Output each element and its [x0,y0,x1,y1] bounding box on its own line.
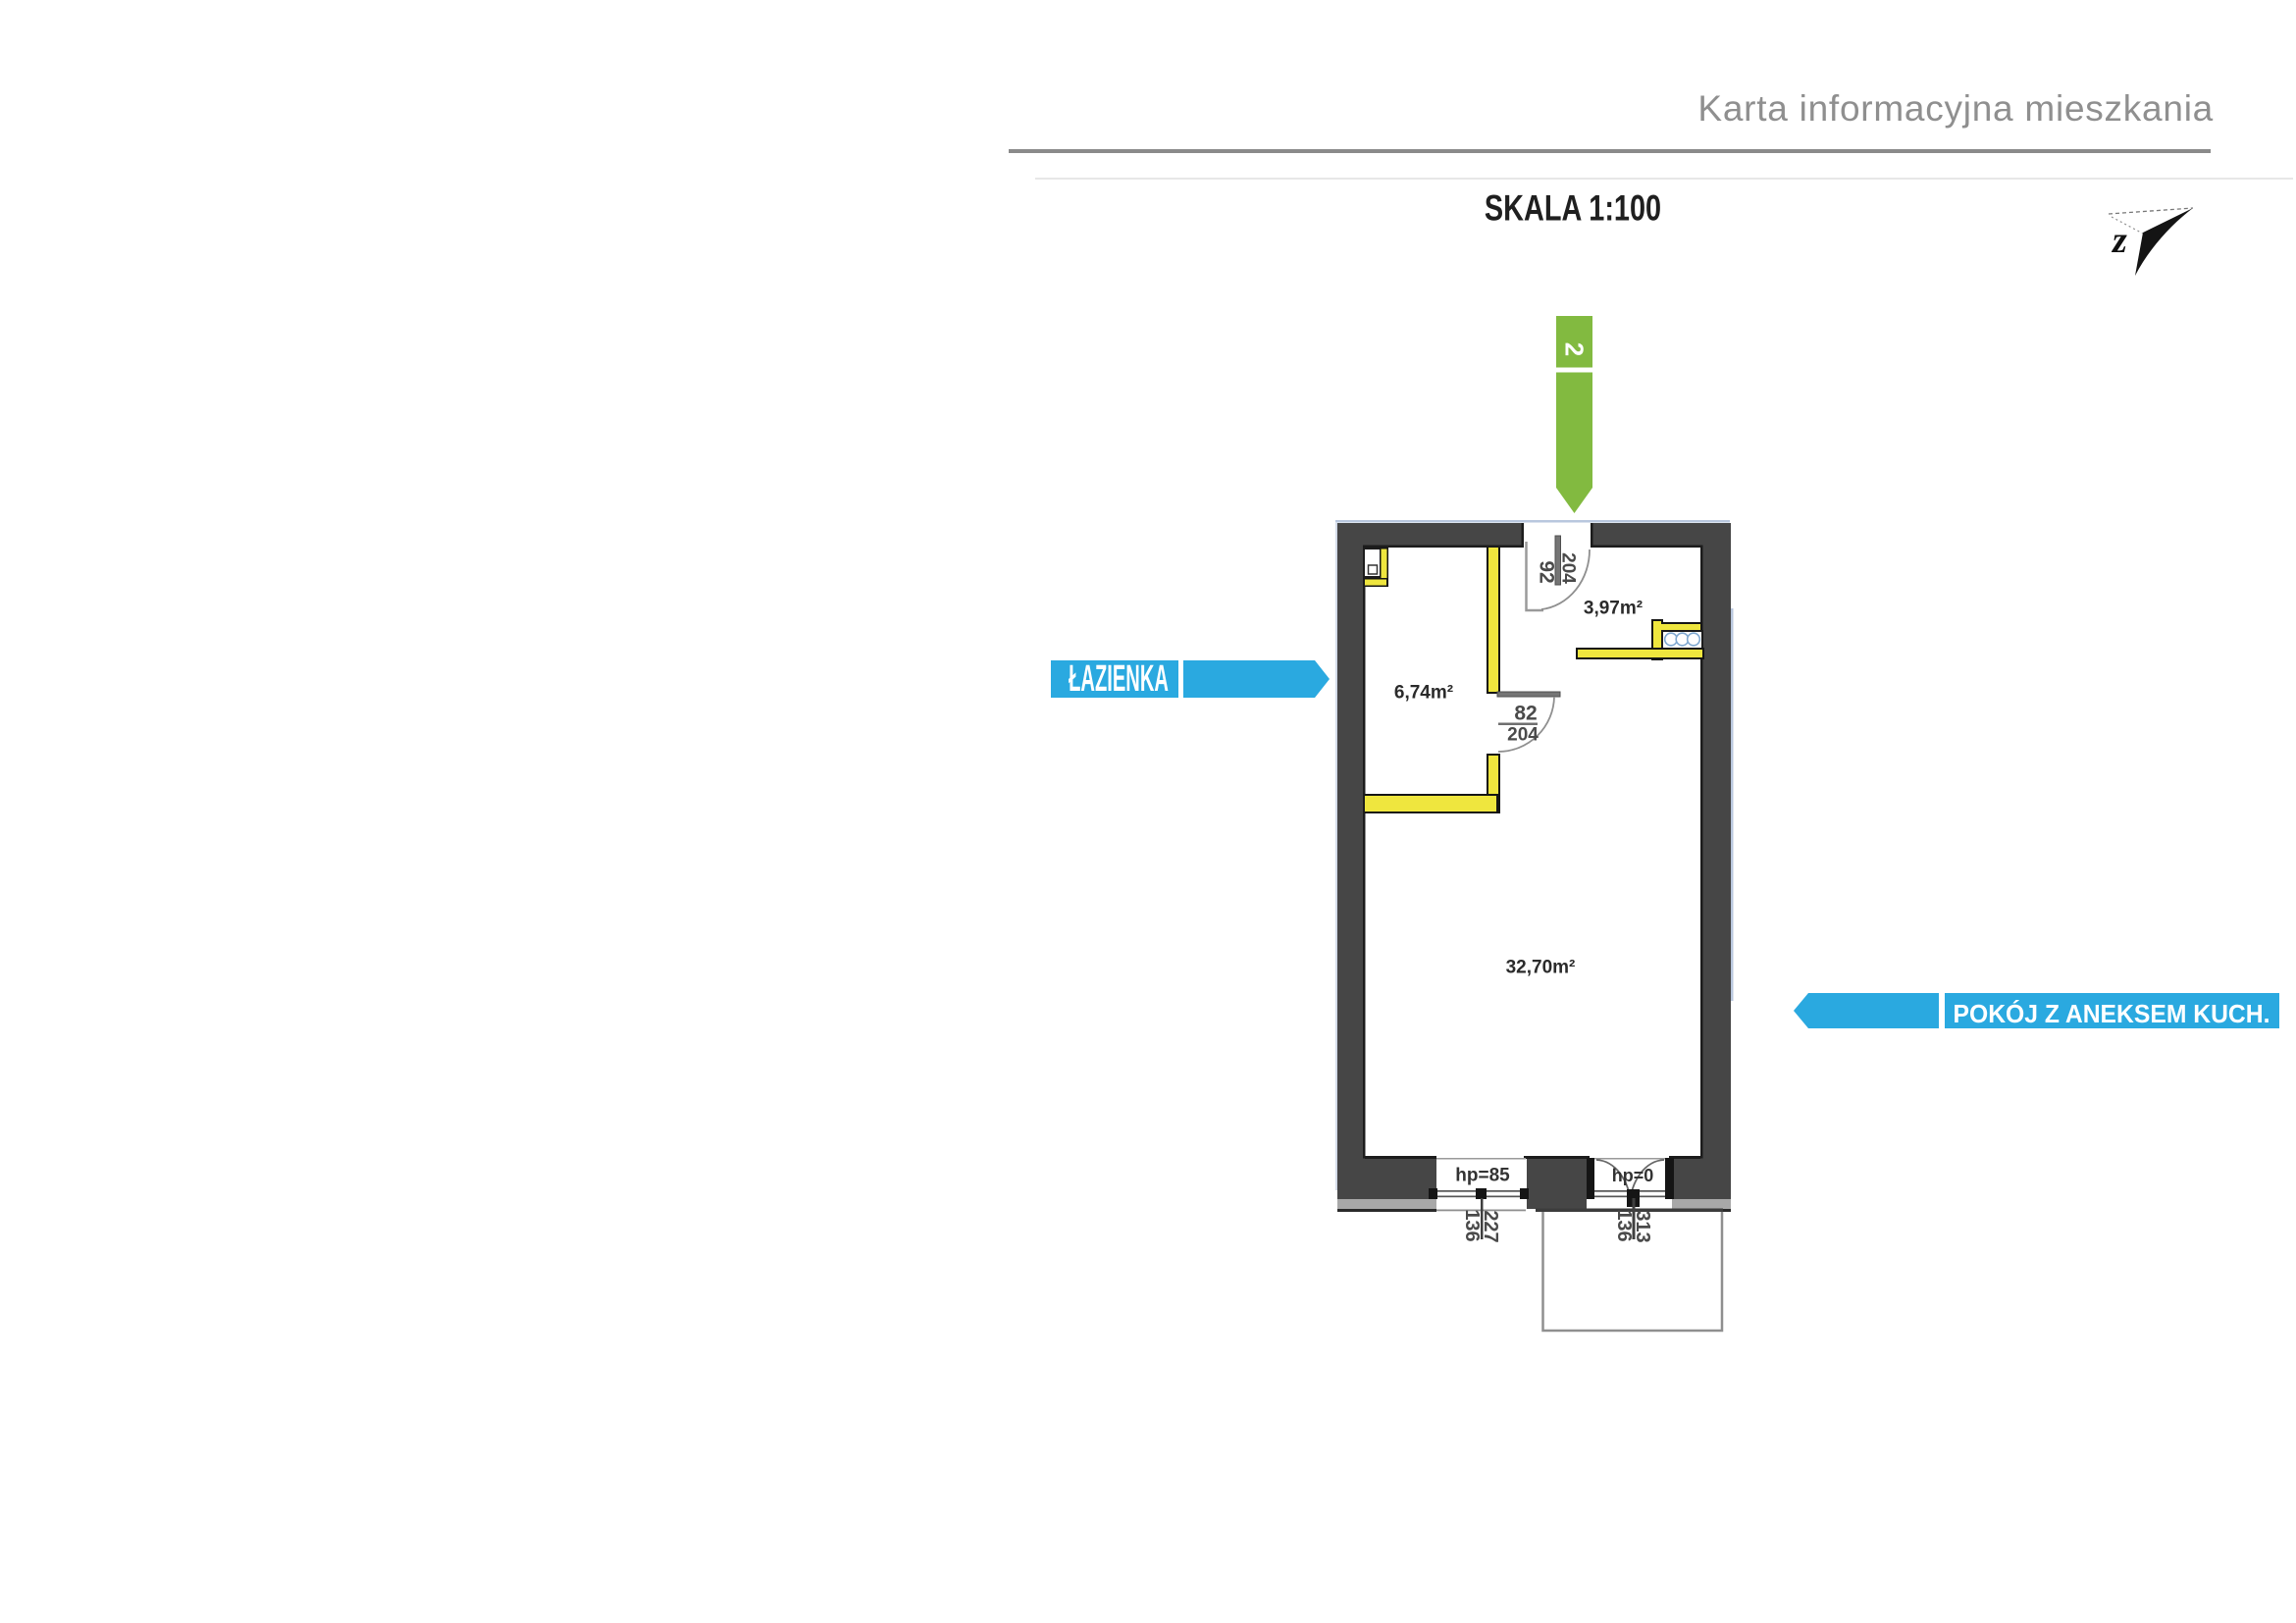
svg-text:2: 2 [1560,342,1590,356]
